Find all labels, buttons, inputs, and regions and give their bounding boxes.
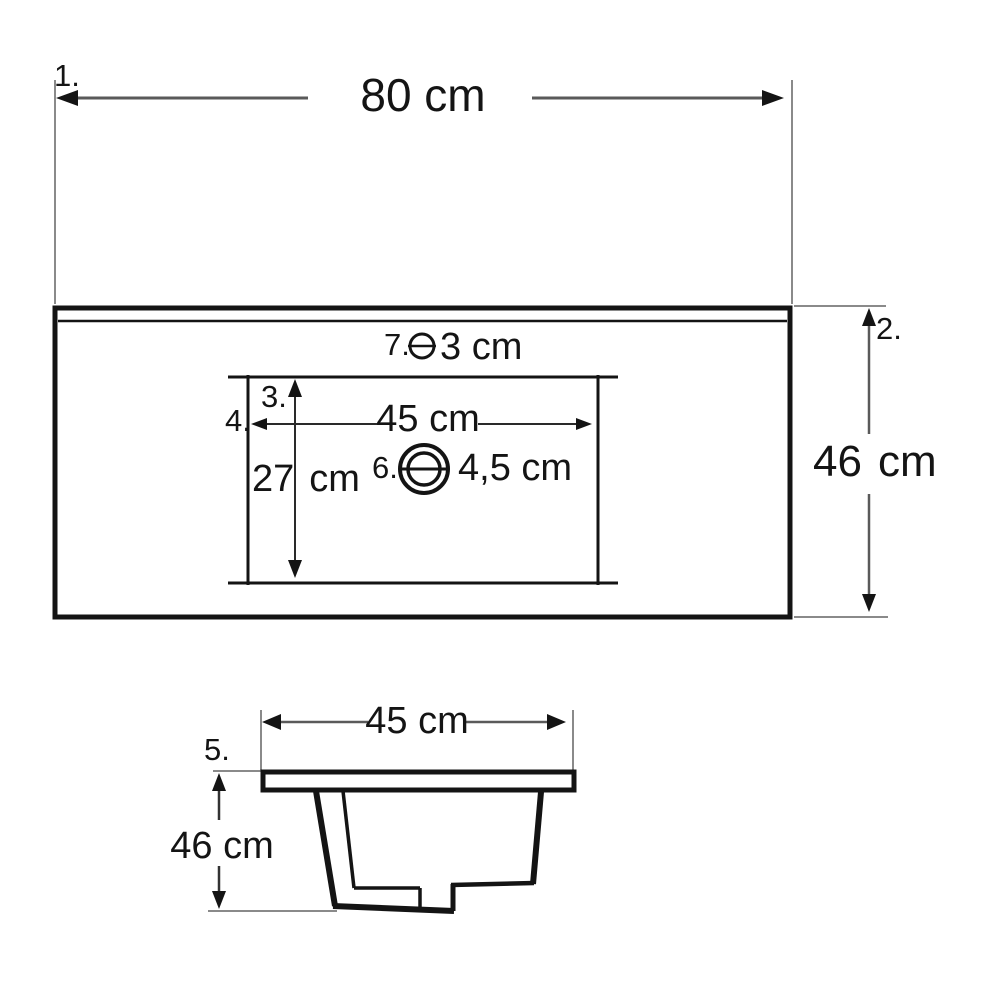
left-inner-wall <box>343 791 354 888</box>
bowl-depth-unit: cm <box>309 460 360 498</box>
right-wall <box>533 792 541 884</box>
overall-depth-unit: cm <box>878 440 937 484</box>
left-outer-wall <box>316 791 335 906</box>
side-width-label: 45 cm <box>342 702 492 740</box>
right-bottom <box>451 883 534 885</box>
basin-top-view-outline <box>55 308 790 617</box>
ref-label-1: 1. <box>54 60 80 91</box>
arrowhead-up-icon <box>862 308 876 326</box>
arrowhead-right-icon <box>762 90 784 106</box>
ref-label-5: 5. <box>204 734 230 765</box>
ref-label-4: 4. <box>225 405 251 436</box>
overall-depth-value: 46 <box>813 440 862 484</box>
ref-label-7: 7. <box>384 329 410 360</box>
ref-label-3: 3. <box>261 381 287 412</box>
arrowhead-right-icon <box>547 714 566 730</box>
washbasin-technical-drawing: 1. 80 cm 2. 46 cm 7. 3 cm 4. 3. 45 cm 27… <box>0 0 1000 1000</box>
bowl-depth-value: 27 <box>252 460 294 498</box>
side-height-label: 46 cm <box>158 827 286 865</box>
arrowhead-up-icon <box>212 773 226 791</box>
basin-side-view-outline <box>263 772 574 911</box>
rim-bar <box>263 772 574 790</box>
overflow-size-label: 3 cm <box>440 328 522 366</box>
outer-bottom <box>333 906 454 911</box>
arrowhead-down-icon <box>862 594 876 612</box>
bowl-depth-label: 27 cm <box>252 460 360 498</box>
drain-size-label: 4,5 cm <box>458 449 572 487</box>
overall-width-label: 80 cm <box>338 72 508 118</box>
arrowhead-left-icon <box>262 714 281 730</box>
ref-label-6: 6. <box>372 452 398 483</box>
bowl-width-label: 45 cm <box>352 400 504 438</box>
ref-label-2: 2. <box>876 313 902 344</box>
drawing-geometry <box>0 0 1000 1000</box>
drain-hole-icon <box>400 445 448 493</box>
arrowhead-down-icon <box>212 891 226 909</box>
overall-depth-label: 46 cm <box>813 440 937 484</box>
basin-outer-rect <box>55 308 790 617</box>
